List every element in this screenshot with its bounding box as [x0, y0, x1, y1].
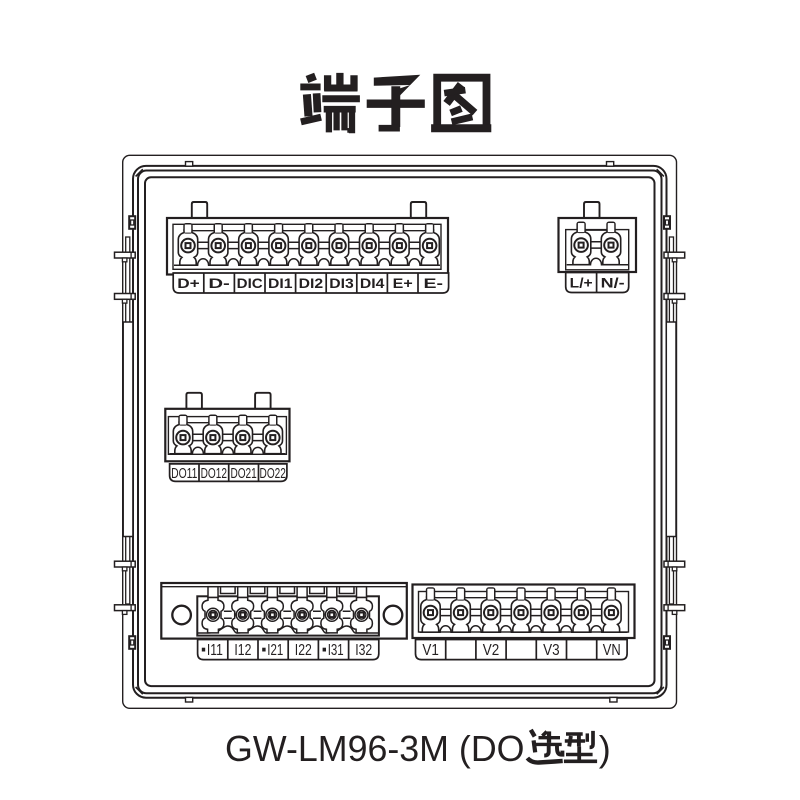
svg-text:): )	[599, 728, 611, 769]
svg-text:I22: I22	[295, 642, 312, 659]
svg-text:V2: V2	[483, 642, 500, 659]
svg-text:E-: E-	[424, 275, 444, 291]
svg-text:DI1: DI1	[268, 275, 293, 291]
svg-text:DO21: DO21	[230, 466, 256, 482]
svg-text:I31: I31	[328, 642, 344, 659]
svg-text:DO12: DO12	[201, 466, 227, 482]
svg-text:DO11: DO11	[171, 466, 197, 482]
svg-text:E+: E+	[393, 275, 413, 291]
svg-text:DI4: DI4	[360, 275, 385, 291]
svg-text:I11: I11	[207, 642, 223, 659]
svg-text:V3: V3	[543, 642, 560, 659]
svg-text:I32: I32	[355, 642, 372, 659]
svg-text:N/-: N/-	[601, 275, 625, 291]
svg-text:D+: D+	[177, 275, 200, 291]
svg-text:DI2: DI2	[299, 275, 324, 291]
svg-text:GW-LM96-3M (DO: GW-LM96-3M (DO	[225, 728, 525, 769]
svg-text:DO22: DO22	[260, 466, 286, 482]
svg-text:DIC: DIC	[237, 275, 263, 291]
svg-text:L/+: L/+	[570, 275, 593, 291]
svg-text:VN: VN	[603, 642, 621, 659]
svg-text:I21: I21	[267, 642, 283, 659]
svg-text:DI3: DI3	[329, 275, 354, 291]
svg-text:D-: D-	[208, 275, 230, 291]
svg-text:V1: V1	[422, 642, 439, 659]
svg-text:I12: I12	[234, 642, 251, 659]
